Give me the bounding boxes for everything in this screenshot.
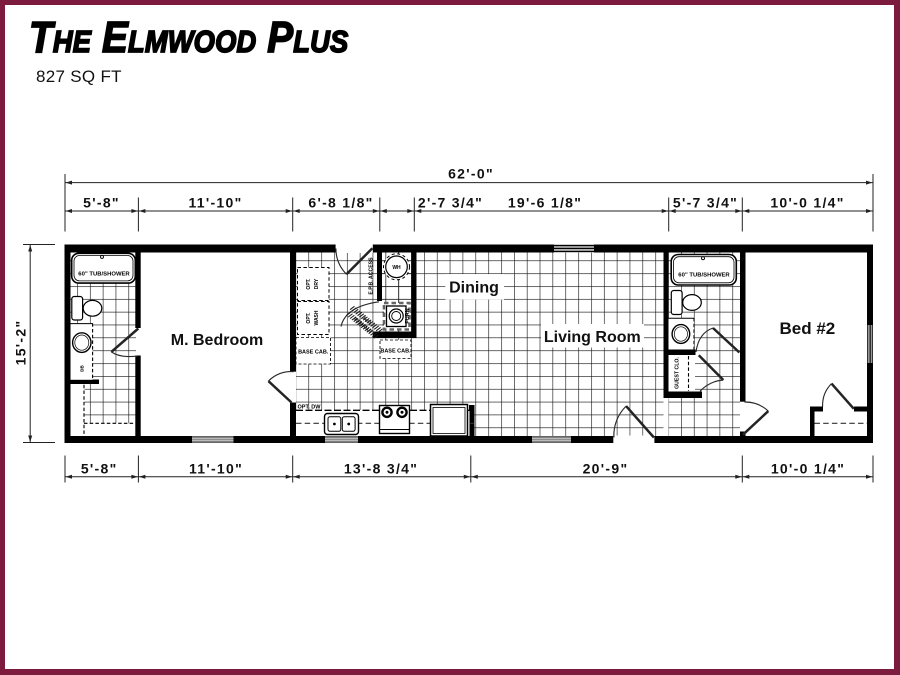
svg-text:5'-8": 5'-8" xyxy=(81,460,118,476)
svg-text:OPT.: OPT. xyxy=(306,312,312,324)
svg-text:Bed #2: Bed #2 xyxy=(780,319,836,338)
svg-text:60” TUB/SHOWER: 60” TUB/SHOWER xyxy=(678,272,730,278)
svg-text:60” TUB/SHOWER: 60” TUB/SHOWER xyxy=(78,271,130,277)
svg-text:10'-0 1/4": 10'-0 1/4" xyxy=(770,195,844,211)
svg-text:5'-7 3/4": 5'-7 3/4" xyxy=(673,195,738,211)
svg-text:13'-8 3/4": 13'-8 3/4" xyxy=(344,460,418,476)
svg-text:WH: WH xyxy=(392,265,401,271)
svg-text:DB: DB xyxy=(80,365,85,372)
svg-text:5'-8": 5'-8" xyxy=(83,195,120,211)
svg-text:Living Room: Living Room xyxy=(544,329,641,346)
svg-text:WASH: WASH xyxy=(314,310,320,325)
svg-text:6'-8 1/8": 6'-8 1/8" xyxy=(308,195,373,211)
svg-text:BASE CAB.: BASE CAB. xyxy=(298,350,329,356)
svg-text:Dining: Dining xyxy=(449,279,499,296)
svg-text:OPT.: OPT. xyxy=(306,278,312,290)
svg-text:M. Bedroom: M. Bedroom xyxy=(171,332,263,349)
svg-text:BASE CAB.: BASE CAB. xyxy=(380,349,411,355)
svg-text:20'-9": 20'-9" xyxy=(583,460,629,476)
svg-text:15'-2": 15'-2" xyxy=(13,320,29,366)
svg-text:19'-6 1/8": 19'-6 1/8" xyxy=(508,195,582,211)
svg-text:2'-7 3/4": 2'-7 3/4" xyxy=(418,195,483,211)
svg-text:62'-0": 62'-0" xyxy=(448,166,494,182)
svg-text:E.P.B. ACCESS: E.P.B. ACCESS xyxy=(369,257,375,295)
svg-text:FURN: FURN xyxy=(405,308,411,323)
svg-text:11'-10": 11'-10" xyxy=(189,460,243,476)
svg-text:DRY: DRY xyxy=(314,278,320,289)
svg-text:GUEST CLO.: GUEST CLO. xyxy=(675,357,681,389)
svg-text:10'-0 1/4": 10'-0 1/4" xyxy=(771,460,845,476)
svg-text:11'-10": 11'-10" xyxy=(188,195,242,211)
svg-text:OPT. DW: OPT. DW xyxy=(298,405,322,411)
